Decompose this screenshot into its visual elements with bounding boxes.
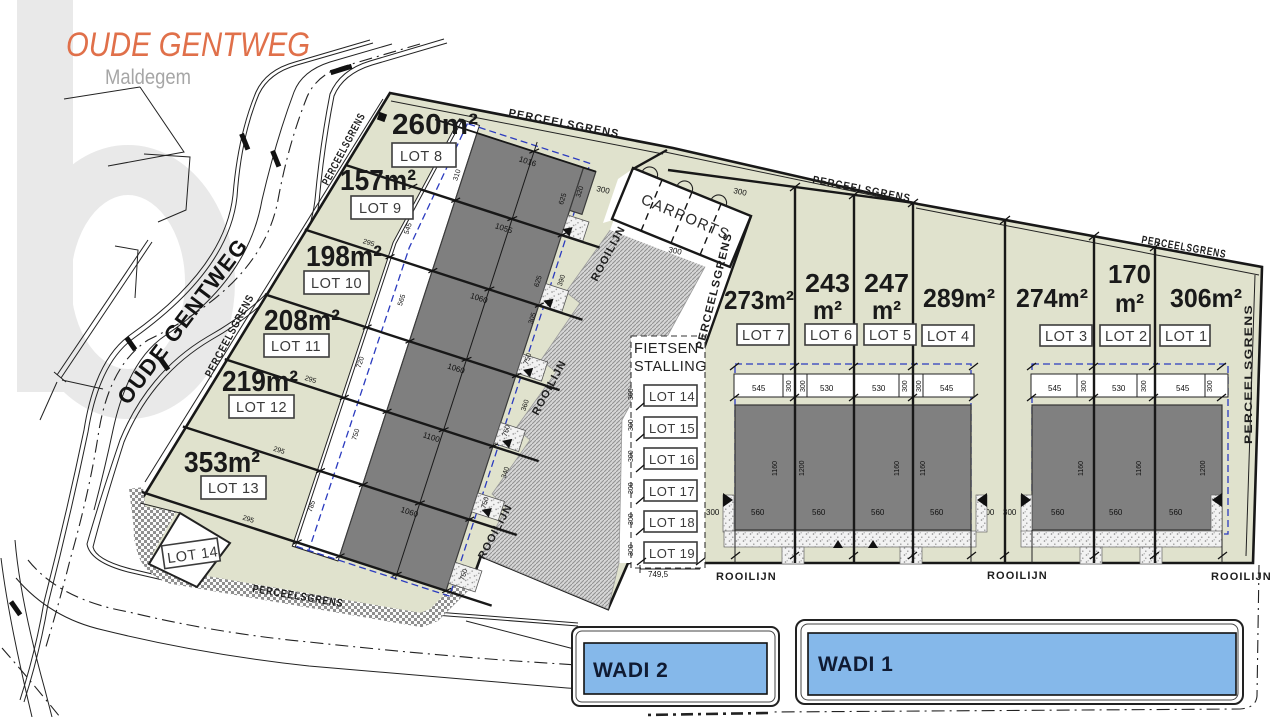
svg-text:LOT 14: LOT 14 — [649, 389, 695, 404]
svg-text:WADI 2: WADI 2 — [593, 659, 668, 682]
svg-text:m²: m² — [1115, 288, 1144, 318]
svg-text:530: 530 — [820, 384, 834, 393]
svg-text:300: 300 — [1207, 380, 1214, 392]
svg-text:LOT 7: LOT 7 — [742, 328, 785, 344]
svg-text:560: 560 — [812, 508, 826, 517]
svg-text:247: 247 — [864, 268, 909, 298]
svg-text:LOT 5: LOT 5 — [869, 328, 912, 344]
svg-text:560: 560 — [871, 508, 885, 517]
svg-text:1160: 1160 — [772, 461, 779, 476]
svg-text:LOT 6: LOT 6 — [810, 328, 853, 344]
svg-text:LOT 13: LOT 13 — [208, 481, 259, 497]
svg-text:FIETSEN: FIETSEN — [634, 341, 699, 357]
svg-text:300: 300 — [628, 544, 635, 556]
svg-text:LOT 17: LOT 17 — [649, 484, 695, 499]
svg-text:1200: 1200 — [1200, 460, 1207, 476]
svg-text:LOT 9: LOT 9 — [359, 201, 402, 217]
svg-text:300: 300 — [786, 380, 793, 392]
svg-text:560: 560 — [1169, 508, 1183, 517]
svg-text:749,5: 749,5 — [648, 570, 669, 579]
svg-text:300: 300 — [1081, 380, 1088, 392]
svg-text:LOT 1: LOT 1 — [1165, 329, 1208, 345]
svg-text:LOT 12: LOT 12 — [236, 400, 287, 416]
svg-text:560: 560 — [1109, 508, 1123, 517]
svg-text:545: 545 — [752, 384, 766, 393]
svg-text:545: 545 — [940, 384, 954, 393]
svg-text:300: 300 — [628, 419, 635, 431]
svg-text:560: 560 — [930, 508, 944, 517]
svg-text:300: 300 — [706, 508, 720, 517]
svg-text:STALLING: STALLING — [634, 359, 707, 375]
svg-text:LOT 18: LOT 18 — [649, 515, 695, 530]
svg-text:208m²: 208m² — [264, 305, 340, 337]
svg-text:243: 243 — [805, 268, 850, 298]
svg-text:LOT 19: LOT 19 — [649, 546, 695, 561]
svg-text:353m²: 353m² — [184, 447, 260, 479]
svg-text:LOT 15: LOT 15 — [649, 421, 695, 436]
svg-text:OUDE GENTWEG: OUDE GENTWEG — [66, 26, 310, 64]
svg-text:300: 300 — [628, 388, 635, 400]
svg-text:LOT 4: LOT 4 — [927, 329, 970, 345]
svg-text:WADI 1: WADI 1 — [818, 653, 893, 676]
svg-text:300: 300 — [902, 380, 909, 392]
svg-text:PERCEELSGRENS: PERCEELSGRENS — [1243, 304, 1255, 444]
svg-text:ROOILIJN: ROOILIJN — [716, 571, 777, 583]
svg-text:545: 545 — [1048, 384, 1062, 393]
svg-text:m²: m² — [813, 295, 842, 325]
svg-text:274m²: 274m² — [1016, 283, 1088, 313]
svg-text:300: 300 — [916, 380, 923, 392]
svg-text:m²: m² — [872, 295, 901, 325]
svg-text:1160: 1160 — [1078, 461, 1085, 476]
svg-text:219m²: 219m² — [222, 366, 298, 398]
svg-text:LOT 3: LOT 3 — [1045, 329, 1088, 345]
svg-text:560: 560 — [1051, 508, 1065, 517]
svg-text:157m²: 157m² — [340, 165, 416, 197]
svg-text:1160: 1160 — [920, 461, 927, 476]
svg-text:1160: 1160 — [894, 461, 901, 476]
svg-text:260m²: 260m² — [392, 109, 478, 141]
svg-text:530: 530 — [1112, 384, 1126, 393]
svg-text:170: 170 — [1108, 259, 1151, 289]
svg-text:273m²: 273m² — [724, 285, 794, 315]
svg-text:LOT 8: LOT 8 — [400, 149, 443, 165]
svg-text:198m²: 198m² — [306, 241, 382, 273]
svg-text:300: 300 — [628, 450, 635, 462]
svg-text:ROOILIJN: ROOILIJN — [987, 570, 1048, 582]
svg-text:LOT 2: LOT 2 — [1105, 329, 1148, 345]
svg-text:LOT 10: LOT 10 — [311, 276, 362, 292]
svg-text:1200: 1200 — [799, 460, 806, 476]
svg-text:300: 300 — [628, 513, 635, 525]
svg-text:545: 545 — [1176, 384, 1190, 393]
svg-text:306m²: 306m² — [1170, 283, 1242, 313]
svg-text:300: 300 — [628, 482, 635, 494]
svg-text:LOT 11: LOT 11 — [271, 339, 321, 355]
svg-text:ROOILIJN: ROOILIJN — [1211, 571, 1272, 583]
svg-text:300: 300 — [800, 380, 807, 392]
svg-text:300: 300 — [1141, 380, 1148, 392]
svg-text:530: 530 — [872, 384, 886, 393]
svg-text:LOT 16: LOT 16 — [649, 452, 695, 467]
svg-text:560: 560 — [751, 508, 765, 517]
svg-text:1160: 1160 — [1136, 461, 1143, 476]
svg-text:Maldegem: Maldegem — [105, 66, 191, 89]
svg-text:289m²: 289m² — [923, 283, 995, 313]
